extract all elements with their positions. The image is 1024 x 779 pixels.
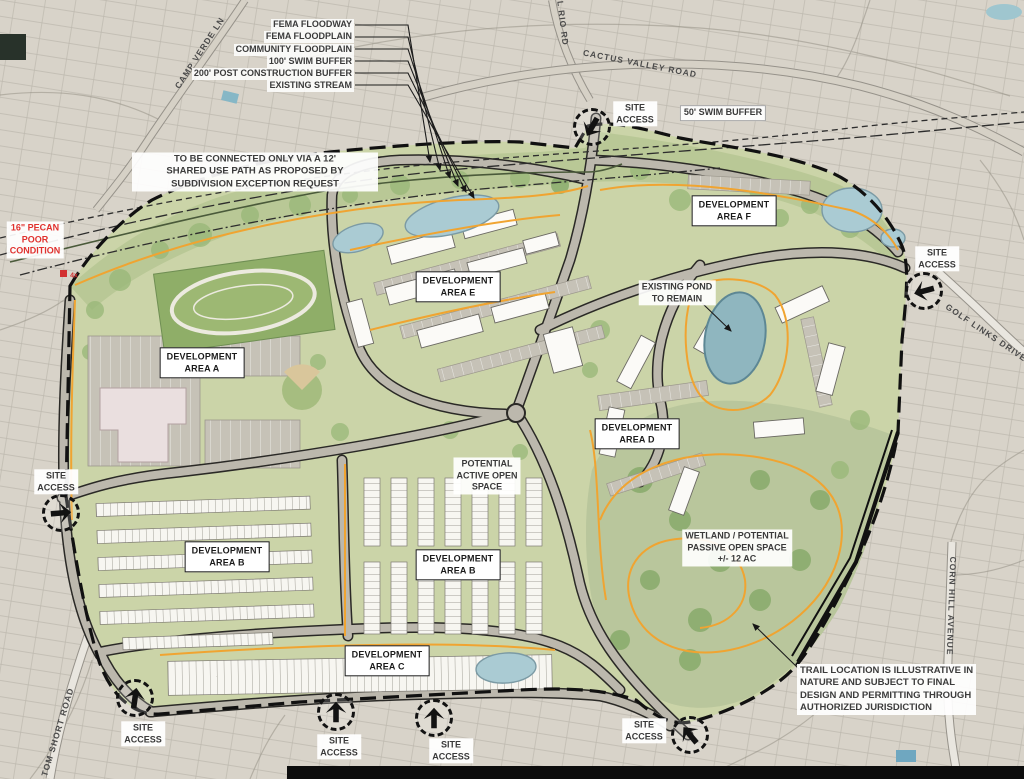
site-plan-map: FEMA FLOODWAY FEMA FLOODPLAIN COMMUNITY … [0, 0, 1024, 779]
label-development-area-b-east: DEVELOPMENT AREA B [416, 549, 501, 580]
site-access-arrow-icon-south-3 [415, 699, 453, 737]
label-development-area-b-west: DEVELOPMENT AREA B [185, 541, 270, 572]
label-development-area-f: DEVELOPMENT AREA F [692, 195, 777, 226]
site-access-label-west: SITE ACCESS [34, 469, 78, 494]
note-active-open-space: POTENTIAL ACTIVE OPEN SPACE [453, 457, 520, 494]
legend-fema-floodway: FEMA FLOODWAY [271, 19, 354, 31]
label-development-area-a: DEVELOPMENT AREA A [160, 347, 245, 378]
bottom-crop-bar [287, 766, 1024, 779]
site-access-label-southeast: SITE ACCESS [622, 718, 666, 743]
site-access-arrow-icon-southeast [671, 716, 709, 754]
legend-existing-stream: EXISTING STREAM [267, 80, 354, 92]
pecan-marker-count: 4x [70, 273, 78, 280]
site-access-label-south-2: SITE ACCESS [317, 734, 361, 759]
label-development-area-c: DEVELOPMENT AREA C [345, 645, 430, 676]
site-access-label-south-1: SITE ACCESS [121, 721, 165, 746]
site-access-arrow-icon-north [573, 108, 611, 146]
site-access-arrow-icon-west [42, 494, 80, 532]
legend-fema-floodplain: FEMA FLOODPLAIN [264, 31, 354, 43]
note-pecan-condition: 16" PECAN POOR CONDITION [7, 221, 64, 258]
site-access-arrow-icon-south-1 [116, 679, 154, 717]
site-access-label-east: SITE ACCESS [915, 246, 959, 271]
note-trail-disclaimer: TRAIL LOCATION IS ILLUSTRATIVE IN NATURE… [797, 664, 976, 715]
label-50-swim-buffer: 50' SWIM BUFFER [680, 105, 766, 121]
note-shared-use-path: TO BE CONNECTED ONLY VIA A 12' SHARED US… [132, 152, 378, 191]
note-existing-pond: EXISTING POND TO REMAIN [639, 280, 716, 305]
legend-200-post-construction-buffer: 200' POST CONSTRUCTION BUFFER [192, 68, 354, 80]
site-access-arrow-icon-east [905, 272, 943, 310]
site-plan-canvas [0, 0, 1024, 779]
note-wetland-open-space: WETLAND / POTENTIAL PASSIVE OPEN SPACE +… [682, 529, 792, 566]
site-access-arrow-icon-south-2 [317, 693, 355, 731]
legend-100-swim-buffer: 100' SWIM BUFFER [267, 56, 354, 68]
label-development-area-e: DEVELOPMENT AREA E [416, 271, 501, 302]
legend-community-floodplain: COMMUNITY FLOODPLAIN [234, 44, 354, 56]
site-access-label-north: SITE ACCESS [613, 101, 657, 126]
label-development-area-d: DEVELOPMENT AREA D [595, 418, 680, 449]
site-access-label-south-3: SITE ACCESS [429, 738, 473, 763]
